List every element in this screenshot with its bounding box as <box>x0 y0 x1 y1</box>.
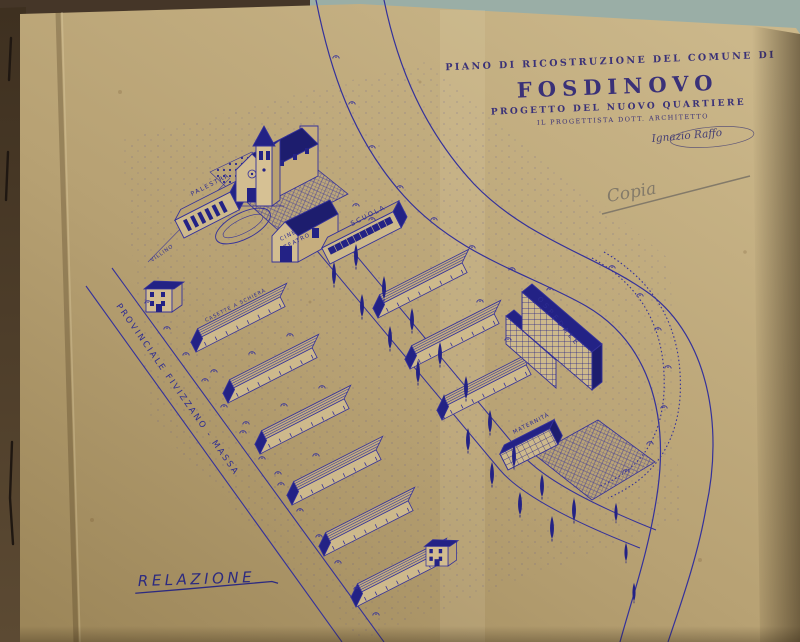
small-villino-building <box>424 540 458 566</box>
page-right-shadow <box>752 26 800 642</box>
photo-of-plan-page: PROVINCIALE FIVIZZANO - MASSA PALESTRA <box>0 0 800 642</box>
page-bottom-shadow <box>20 626 800 642</box>
villino-building <box>144 281 184 312</box>
